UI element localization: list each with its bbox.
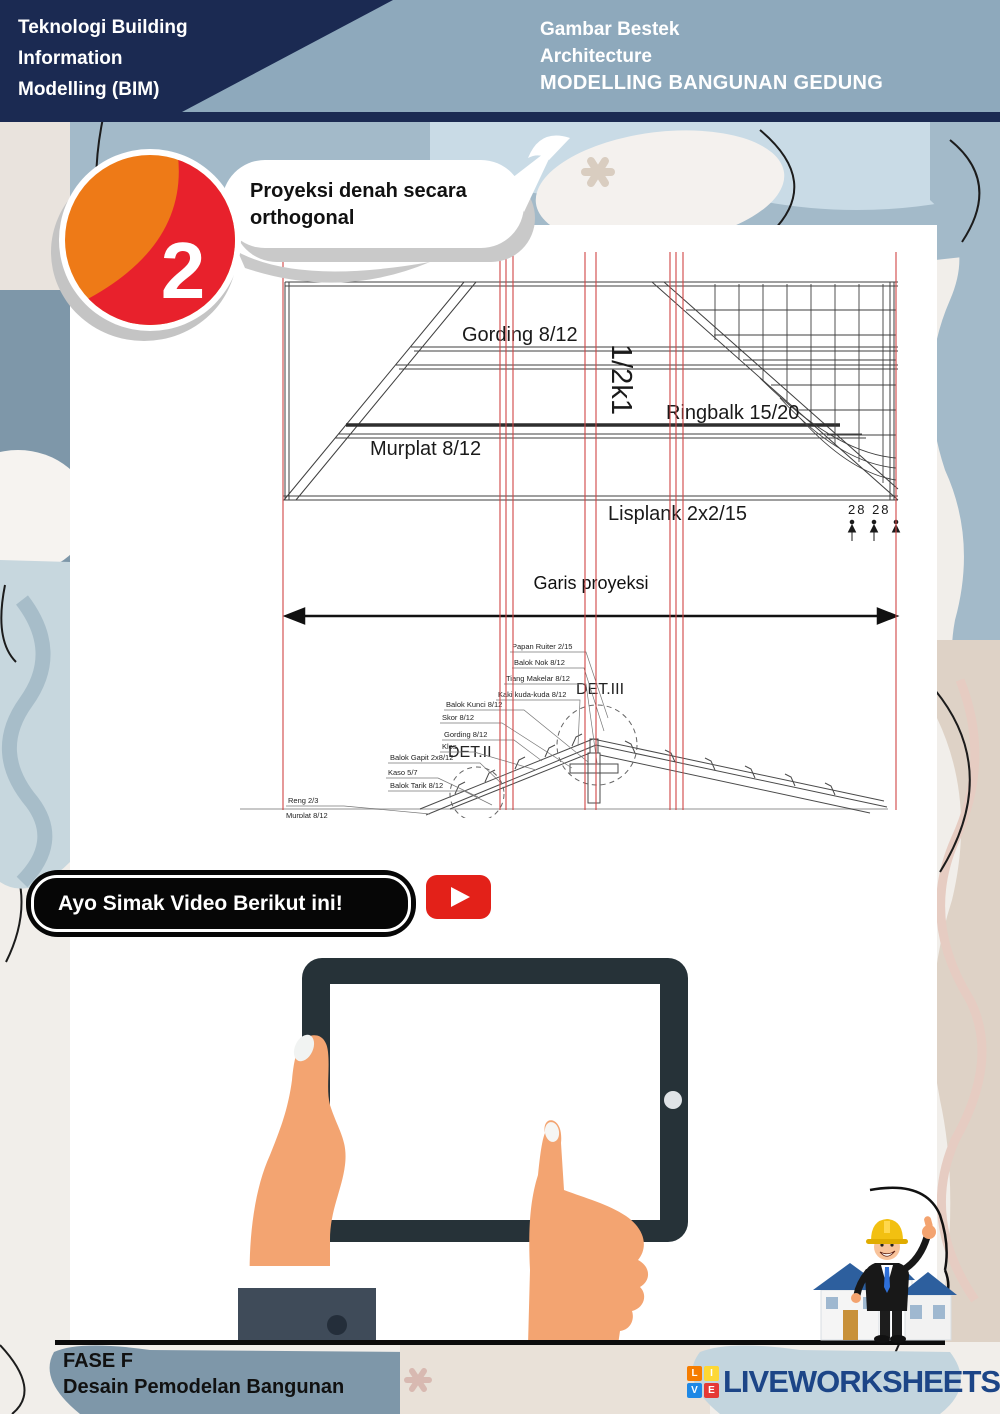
worksheet-page: Teknologi Building Information Modelling… <box>0 0 1000 1414</box>
shirt-cuff <box>242 1266 366 1290</box>
projection-arrow <box>286 609 896 623</box>
truss-label: Tiang Makelar 8/12 <box>506 674 570 683</box>
truss-label: Balok Kunci 8/12 <box>446 700 502 709</box>
truss-label: Gording 8/12 <box>444 730 487 739</box>
bubble-text: Proyeksi denah secara orthogonal <box>250 178 530 232</box>
video-button-inner: Ayo Simak Video Berikut ini! <box>31 875 411 932</box>
truss-callouts: Papan Ruiter 2/15 Balok Nok 8/12 Tiang M… <box>286 642 572 818</box>
label-det3: DET.III <box>576 681 624 698</box>
truss-label: Balok Nok 8/12 <box>514 658 565 667</box>
tablet-screen <box>330 984 660 1220</box>
logo-letter: L <box>687 1366 702 1381</box>
cuff-button <box>327 1315 347 1335</box>
header-right-line: Architecture <box>540 43 883 70</box>
video-button-label: Ayo Simak Video Berikut ini! <box>58 892 343 916</box>
video-button[interactable]: Ayo Simak Video Berikut ini! <box>26 870 416 937</box>
truss-label: Murplat 8/12 <box>286 811 328 818</box>
tablet-illustration <box>230 940 730 1345</box>
step-number: 2 <box>161 226 206 315</box>
logo-letter: E <box>704 1383 719 1398</box>
footer-phase: FASE F <box>63 1350 133 1373</box>
logo-letter: I <box>704 1366 719 1381</box>
liveworksheets-logo[interactable]: L I V E LIVEWORKSHEETS <box>687 1364 1000 1400</box>
truss-label: Balok Gapit 2x8/12 <box>390 753 453 762</box>
header-right-line: MODELLING BANGUNAN GEDUNG <box>540 70 883 97</box>
label-murplat: Murplat 8/12 <box>370 438 481 460</box>
truss-label: Kaso 5/7 <box>388 768 418 777</box>
bubble-line: Proyeksi denah secara <box>250 178 530 205</box>
dimension-pins <box>849 520 900 541</box>
sleeve <box>238 1288 376 1345</box>
label-lisplank: Lisplank 2x2/15 <box>608 503 747 525</box>
youtube-play-icon[interactable] <box>426 875 491 919</box>
header-left-line: Information <box>18 43 188 74</box>
header-left-title: Teknologi Building Information Modelling… <box>18 12 188 105</box>
liveworksheets-grid-icon: L I V E <box>687 1366 719 1398</box>
truss-label: Klos <box>442 742 457 751</box>
label-ringbalk: Ringbalk 15/20 <box>666 402 799 424</box>
truss-label: Skor 8/12 <box>442 713 474 722</box>
truss-label: Kaki kuda-kuda 8/12 <box>498 690 566 699</box>
header-right-title: Gambar Bestek Architecture MODELLING BAN… <box>540 16 883 97</box>
header-left-line: Teknologi Building <box>18 12 188 43</box>
header-right-line: Gambar Bestek <box>540 16 883 43</box>
liveworksheets-wordmark: LIVEWORKSHEETS <box>723 1364 1000 1400</box>
truss-label: Reng 2/3 <box>288 796 318 805</box>
truss-section-lines <box>240 705 888 818</box>
engineer-mascot <box>795 1175 960 1345</box>
label-garis-proyeksi: Garis proyeksi <box>533 573 648 593</box>
logo-letter: V <box>687 1383 702 1398</box>
truss-label: Balok Tarik 8/12 <box>390 781 443 790</box>
truss-label: Papan Ruiter 2/15 <box>512 642 572 651</box>
bubble-line: orthogonal <box>250 205 530 232</box>
footer-subtitle: Desain Pemodelan Bangunan <box>63 1376 344 1399</box>
tablet-home-button <box>664 1091 682 1109</box>
label-dimension: 28 28 <box>848 502 891 517</box>
